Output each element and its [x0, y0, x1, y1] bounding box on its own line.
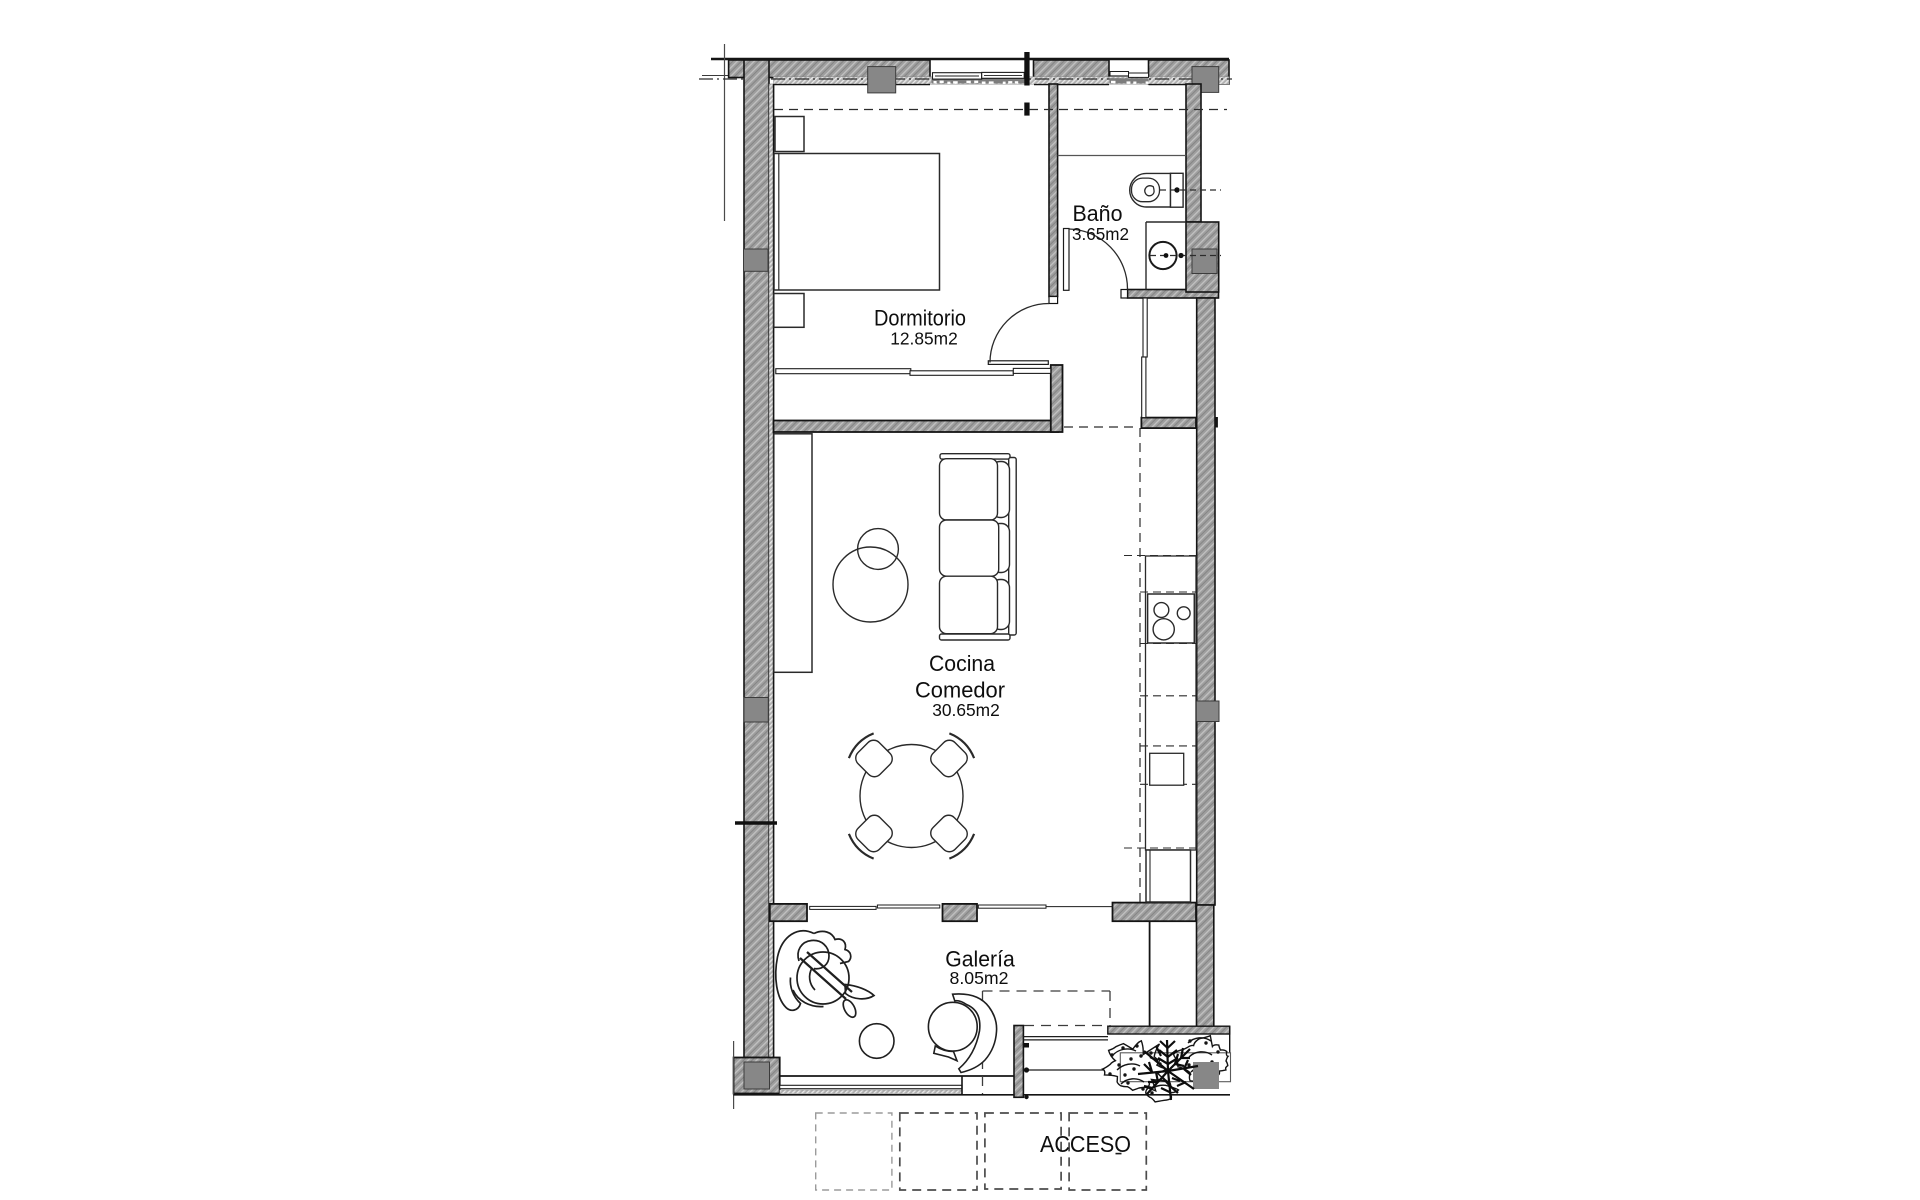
svg-text:30.65m2: 30.65m2	[932, 700, 1000, 720]
svg-text:8.05m2: 8.05m2	[950, 968, 1009, 988]
svg-text:Cocina: Cocina	[929, 651, 995, 676]
svg-text:3.65m2: 3.65m2	[1072, 224, 1129, 244]
svg-text:12.85m2: 12.85m2	[890, 329, 958, 349]
svg-text:Comedor: Comedor	[915, 678, 1005, 703]
svg-text:Baño: Baño	[1073, 201, 1123, 226]
svg-text:Dormitorio: Dormitorio	[874, 306, 966, 331]
